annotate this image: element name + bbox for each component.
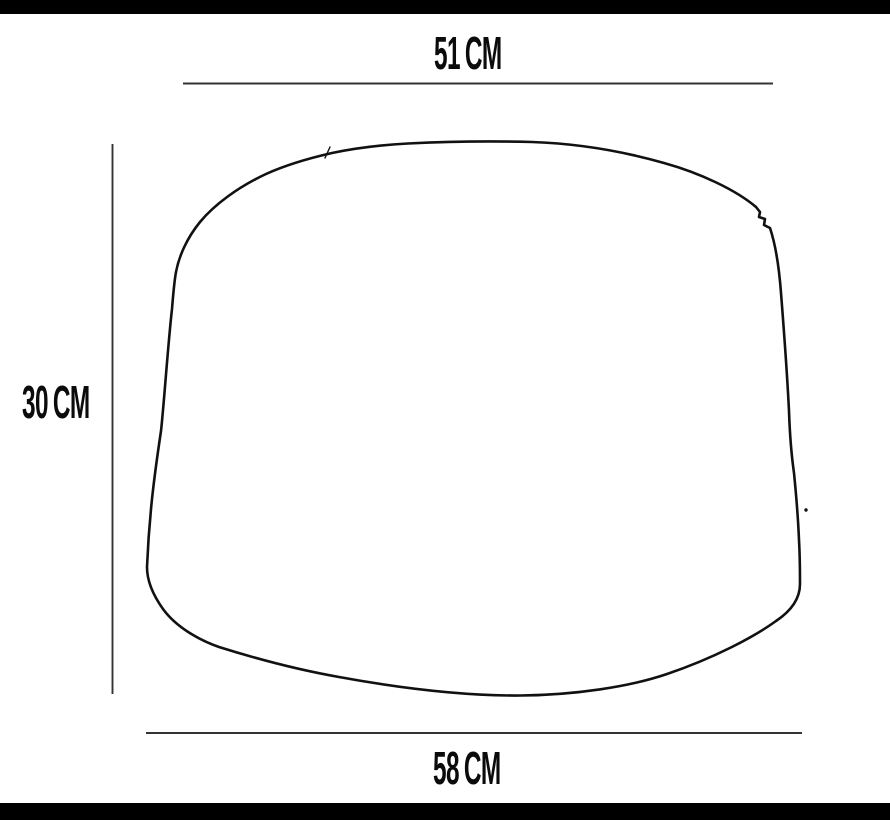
bottom-width-value: 58 [433, 745, 459, 791]
top-width-label: 51 CM [348, 28, 588, 78]
bottom-width-label: 58 CM [347, 743, 587, 793]
stray-dot [804, 508, 807, 511]
height-unit: CM [53, 379, 90, 425]
height-label: 30 CM [0, 377, 176, 427]
pouf-outline [147, 142, 800, 696]
dimension-diagram: 51 CM 30 CM 58 CM [0, 0, 890, 820]
height-value: 30 [22, 379, 48, 425]
top-width-value: 51 [434, 30, 460, 76]
bottom-width-unit: CM [464, 745, 501, 791]
top-width-unit: CM [465, 30, 502, 76]
